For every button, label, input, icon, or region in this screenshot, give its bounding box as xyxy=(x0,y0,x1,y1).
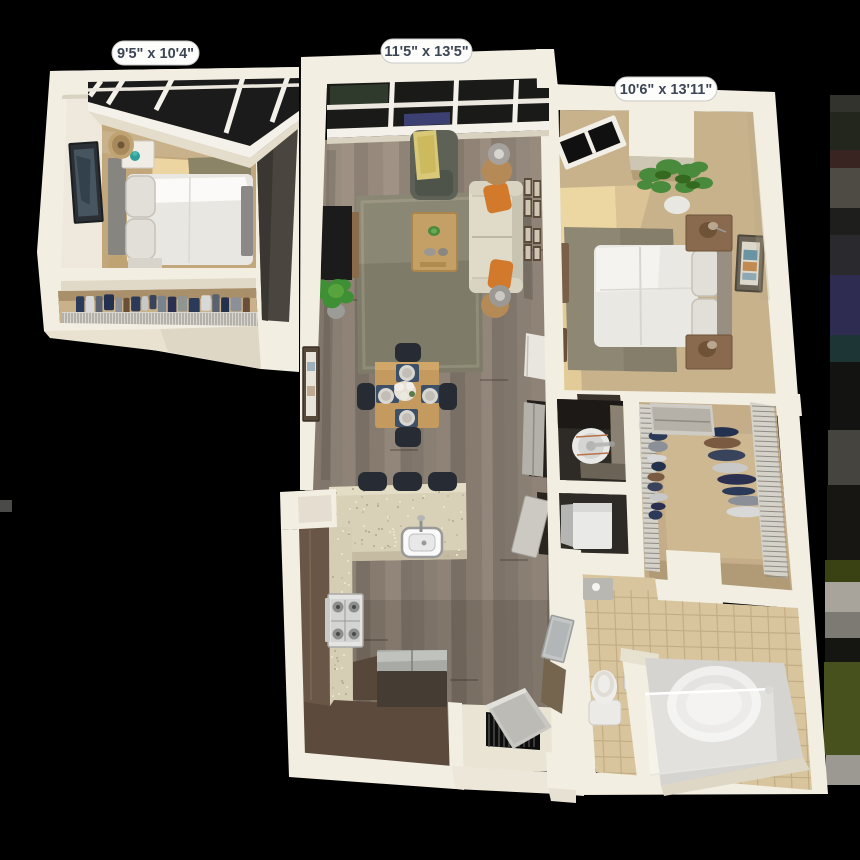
svg-text:10'6" x 13'11": 10'6" x 13'11" xyxy=(620,82,712,98)
svg-text:9'5" x 10'4": 9'5" x 10'4" xyxy=(117,46,194,62)
svg-text:11'5" x 13'5": 11'5" x 13'5" xyxy=(384,44,468,60)
